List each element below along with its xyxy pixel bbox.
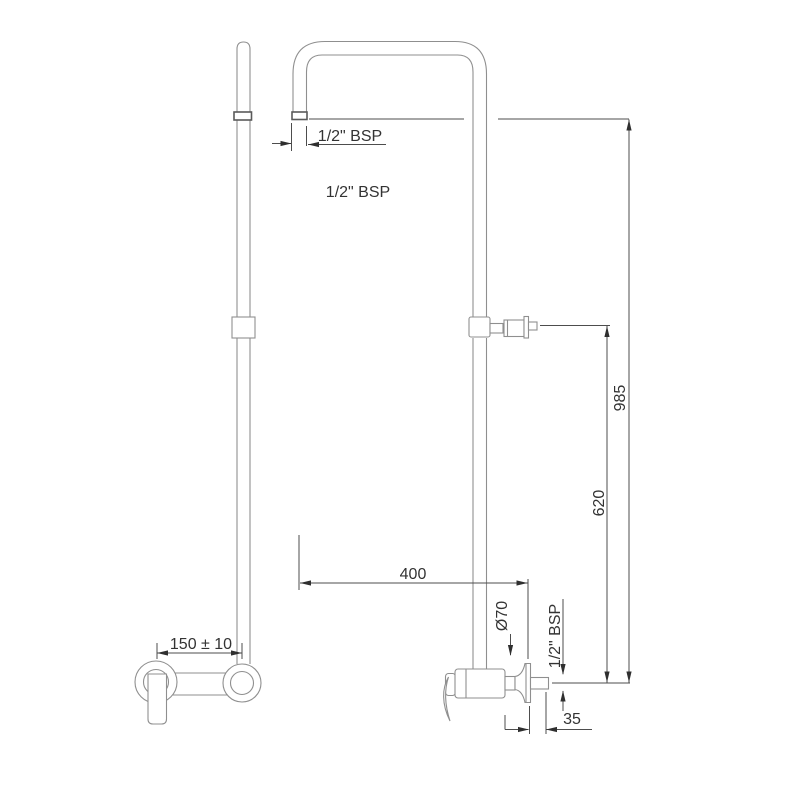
gooseneck-outer [293, 42, 487, 318]
front-wall-bracket [232, 317, 255, 338]
arrowhead [626, 672, 631, 683]
valve-body [455, 669, 505, 698]
front-view [135, 42, 261, 724]
arrowhead [560, 691, 565, 702]
dim-35: 35 [505, 692, 592, 734]
overall-height-text: 985 [612, 385, 629, 412]
front-mixer-lever [148, 674, 167, 724]
dim-spout-thread: 1/2" BSP [272, 123, 386, 151]
front-riser-tube [237, 42, 250, 664]
arrowhead [546, 727, 557, 732]
dim-flange-diameter: Ø70 [494, 601, 513, 656]
wall-bracket-assembly [469, 317, 537, 339]
flange-diameter-text: Ø70 [494, 601, 511, 631]
right-inlet-inner [231, 672, 254, 695]
dim-400: 400 [299, 535, 528, 659]
bracket-flange [524, 317, 529, 339]
drawing-page: 1/2" BSP 1/2" BSP 985 620 400 [0, 0, 800, 800]
dim-outlet-thread: 1/2" BSP [547, 599, 566, 711]
spout-reach-text: 400 [400, 566, 427, 583]
inlet-centres-text: 150 ± 10 [170, 636, 232, 653]
arrowhead [157, 650, 168, 655]
dim-985: 985 [612, 120, 632, 683]
bracket-height-text: 620 [591, 490, 608, 517]
arrowhead [508, 645, 513, 656]
shower-column-technical-drawing: 1/2" BSP 1/2" BSP 985 620 400 [0, 0, 800, 800]
spout-thread-text: 1/2" BSP [318, 128, 382, 145]
outlet-thread-text: 1/2" BSP [547, 604, 564, 668]
spout-nozzle [292, 112, 307, 120]
arrowhead [517, 580, 528, 585]
valve-wall-flange [515, 664, 531, 703]
front-spout-collar [234, 112, 252, 120]
dimensions: 1/2" BSP 1/2" BSP 985 620 400 [157, 119, 632, 734]
riser-thread-text: 1/2" BSP [326, 184, 390, 201]
arrowhead [281, 141, 292, 146]
bracket-block [469, 317, 490, 337]
arrowhead [518, 727, 529, 732]
valve-neck [505, 677, 515, 691]
mixer-valve-assembly [444, 664, 549, 722]
dim-inlet-centres: 150 ± 10 [157, 636, 242, 659]
arrowhead [300, 580, 311, 585]
arrowhead [604, 326, 609, 337]
arrowhead [626, 120, 631, 131]
valve-outlet-stub [531, 678, 549, 690]
arrowhead [604, 672, 609, 683]
wall-projection-text: 35 [563, 711, 581, 728]
bracket-wall-pin [529, 322, 538, 330]
bracket-neck [490, 324, 503, 334]
